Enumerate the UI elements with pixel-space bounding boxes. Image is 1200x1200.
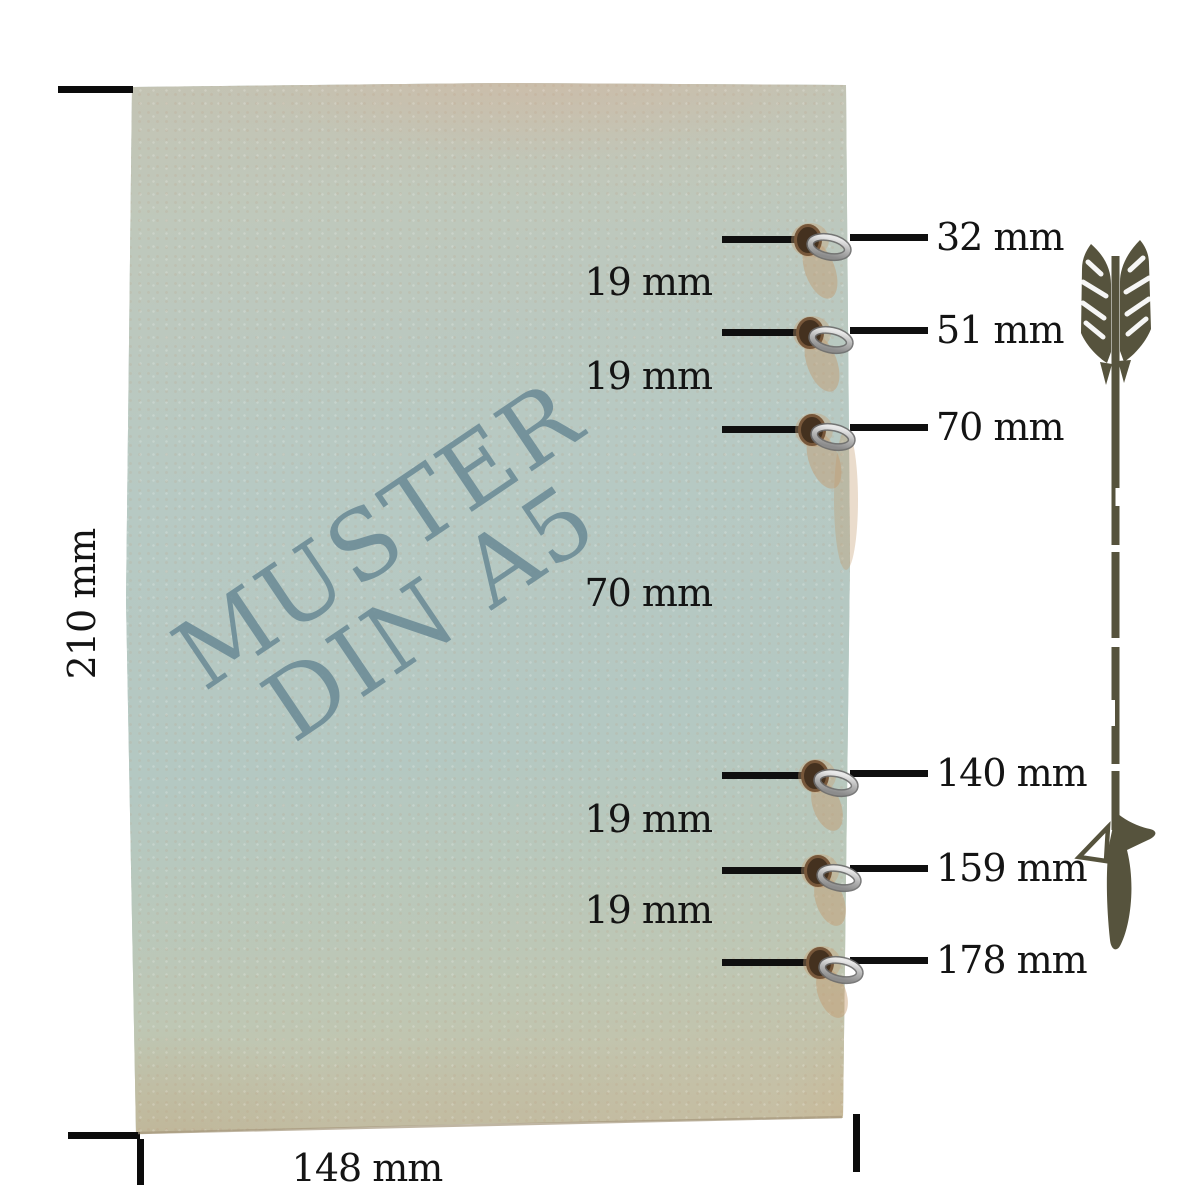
leader-line-hole-2 xyxy=(722,329,797,336)
height-tick-bottom xyxy=(68,1132,140,1139)
callout-line-hole-4 xyxy=(850,770,928,777)
hole-position-label-2: 51 mm xyxy=(936,307,1126,353)
width-tick-left xyxy=(137,1139,144,1185)
callout-line-hole-5 xyxy=(850,865,928,872)
hole-position-label-6: 178 mm xyxy=(936,937,1126,983)
width-tick-right xyxy=(853,1114,860,1172)
callout-line-hole-3 xyxy=(850,424,928,431)
spacing-label-3: 70 mm xyxy=(540,570,712,616)
spacing-label-2: 19 mm xyxy=(540,353,712,399)
callout-line-hole-6 xyxy=(850,957,928,964)
arrow-fletching-tuft xyxy=(1118,360,1131,383)
diagram-canvas: MUSTER DIN A5 210 mm 148 mm 32 mm 51 mm … xyxy=(0,0,1200,1200)
spacing-label-4: 19 mm xyxy=(540,796,712,842)
leader-line-hole-5 xyxy=(722,867,805,874)
callout-line-hole-2 xyxy=(850,327,928,334)
height-tick-top xyxy=(58,86,133,93)
spacing-label-1: 19 mm xyxy=(540,259,712,305)
leader-line-hole-4 xyxy=(722,772,802,779)
leader-line-hole-1 xyxy=(722,236,795,243)
hole-position-label-1: 32 mm xyxy=(936,214,1126,260)
sheet-width-label: 148 mm xyxy=(272,1146,462,1190)
hole-position-label-5: 159 mm xyxy=(936,845,1126,891)
callout-line-hole-1 xyxy=(850,234,928,241)
hole-position-label-3: 70 mm xyxy=(936,404,1126,450)
hole-position-label-4: 140 mm xyxy=(936,750,1126,796)
leader-line-hole-3 xyxy=(722,426,799,433)
spacing-label-5: 19 mm xyxy=(540,887,712,933)
arrow-fletching-tuft xyxy=(1100,362,1112,385)
leader-line-hole-6 xyxy=(722,959,807,966)
